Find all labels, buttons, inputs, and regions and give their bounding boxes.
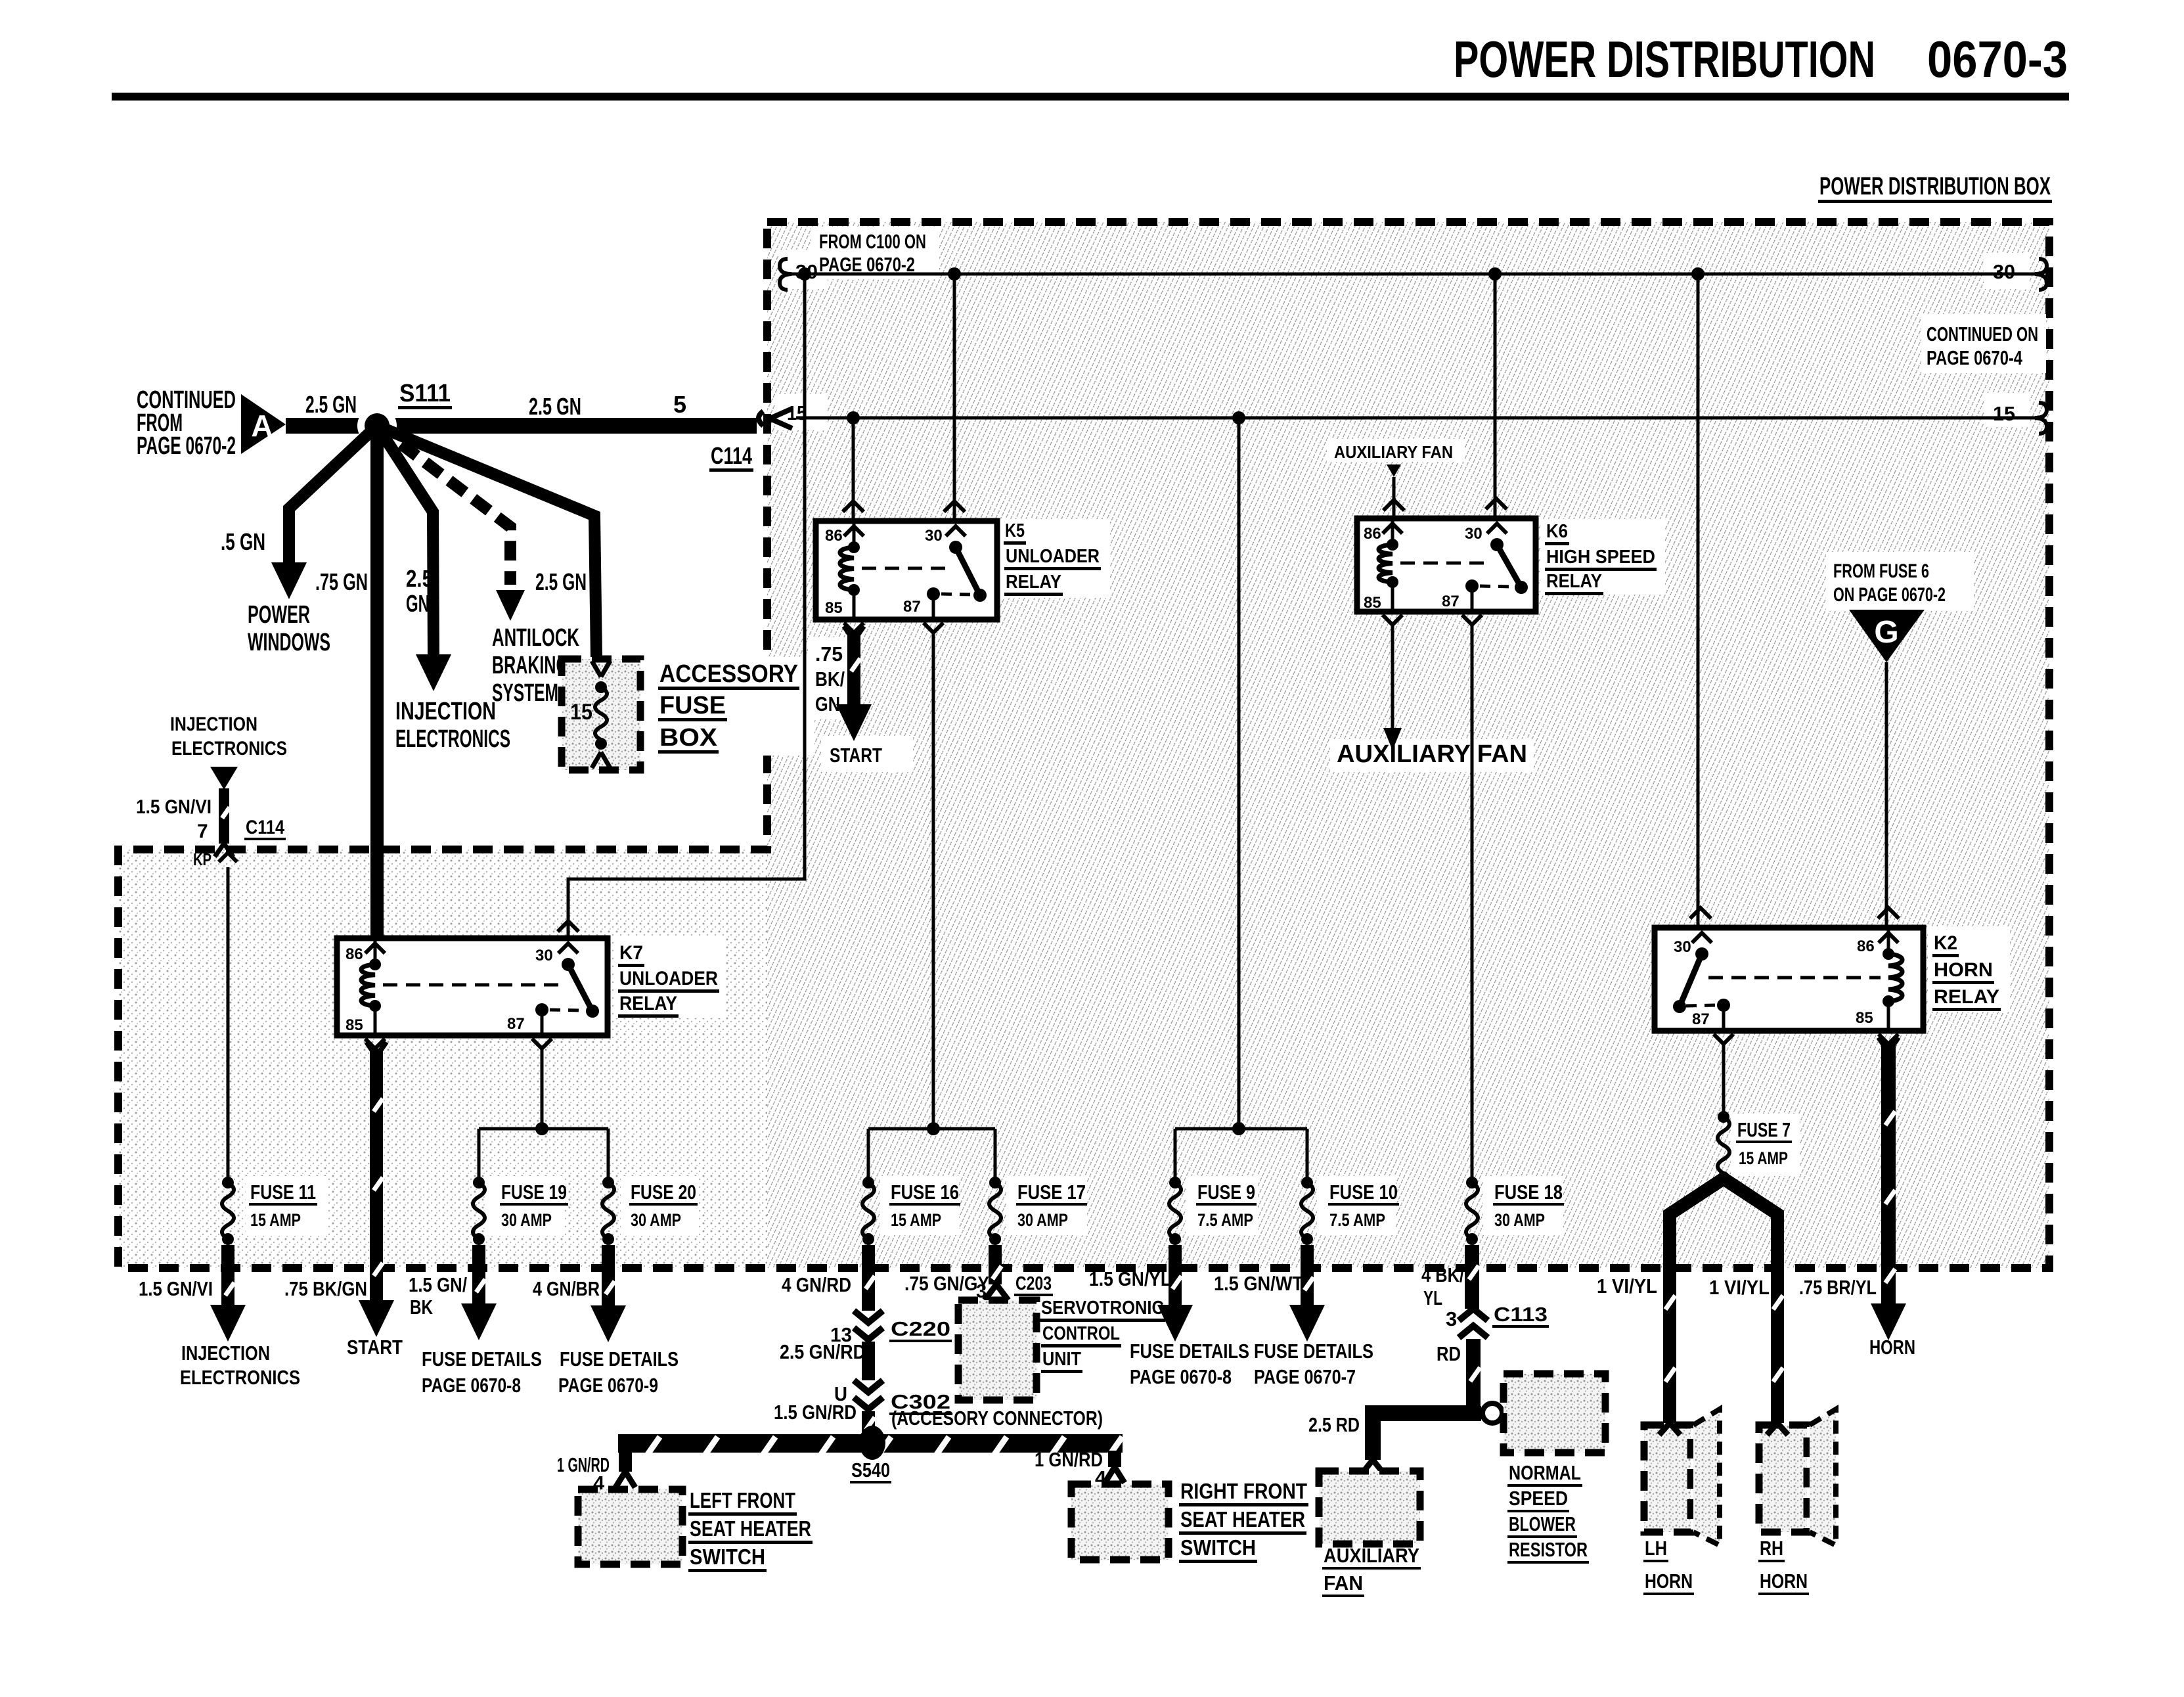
svg-text:PAGE 0670-8: PAGE 0670-8 [422, 1374, 521, 1397]
svg-text:RELAY: RELAY [619, 993, 677, 1014]
svg-text:3: 3 [1446, 1307, 1457, 1330]
svg-text:INJECTION: INJECTION [181, 1342, 270, 1365]
svg-text:RH: RH [1760, 1537, 1783, 1560]
svg-text:30 AMP: 30 AMP [1017, 1210, 1068, 1230]
svg-text:NORMAL: NORMAL [1509, 1461, 1581, 1484]
svg-text:HORN: HORN [1869, 1336, 1915, 1359]
svg-text:BK: BK [410, 1296, 433, 1319]
svg-text:C114: C114 [711, 442, 752, 469]
svg-text:KP: KP [193, 849, 212, 869]
svg-text:AUXILIARY FAN: AUXILIARY FAN [1337, 740, 1527, 768]
svg-text:PAGE 0670-4: PAGE 0670-4 [1927, 346, 2023, 369]
svg-text:BRAKING: BRAKING [492, 652, 569, 679]
svg-text:LEFT FRONT: LEFT FRONT [690, 1488, 795, 1512]
svg-text:15 AMP: 15 AMP [891, 1210, 941, 1230]
svg-text:FUSE: FUSE [659, 692, 726, 719]
svg-text:START: START [347, 1336, 403, 1359]
svg-text:GN: GN [815, 692, 840, 715]
svg-text:RELAY: RELAY [1934, 986, 1999, 1008]
svg-text:SERVOTRONIC: SERVOTRONIC [1041, 1298, 1164, 1319]
svg-text:HORN: HORN [1760, 1570, 1808, 1593]
svg-text:7.5 AMP: 7.5 AMP [1329, 1210, 1385, 1230]
svg-text:PAGE 0670-2: PAGE 0670-2 [137, 432, 236, 460]
svg-text:BOX: BOX [659, 724, 718, 752]
svg-text:BK/: BK/ [815, 667, 845, 690]
svg-text:4 GN/BR: 4 GN/BR [533, 1277, 600, 1300]
svg-text:7: 7 [197, 821, 208, 842]
svg-text:2.5 GN: 2.5 GN [305, 391, 357, 418]
svg-text:7.5 AMP: 7.5 AMP [1197, 1210, 1253, 1230]
svg-text:HIGH SPEED: HIGH SPEED [1546, 547, 1655, 568]
svg-text:.75 BR/YL: .75 BR/YL [1799, 1276, 1877, 1299]
svg-text:15 AMP: 15 AMP [250, 1210, 301, 1230]
svg-text:PAGE 0670-8: PAGE 0670-8 [1130, 1365, 1232, 1388]
svg-text:LH: LH [1645, 1537, 1667, 1560]
svg-text:87: 87 [903, 598, 921, 616]
svg-text:15: 15 [1993, 402, 2015, 425]
svg-text:FROM FUSE 6: FROM FUSE 6 [1833, 560, 1929, 582]
svg-text:4 BK/: 4 BK/ [1421, 1263, 1464, 1286]
svg-text:INJECTION: INJECTION [395, 698, 496, 725]
svg-text:30 AMP: 30 AMP [1494, 1210, 1545, 1230]
svg-text:SYSTEM: SYSTEM [492, 679, 558, 707]
svg-text:CONTINUED ON: CONTINUED ON [1927, 323, 2038, 346]
svg-text:1.5 GN/: 1.5 GN/ [409, 1273, 467, 1296]
svg-text:1.5 GN/RD: 1.5 GN/RD [774, 1401, 857, 1424]
svg-text:86: 86 [345, 945, 363, 963]
svg-text:15 AMP: 15 AMP [1739, 1148, 1788, 1168]
svg-text:FUSE DETAILS: FUSE DETAILS [560, 1347, 679, 1370]
svg-text:86: 86 [1364, 525, 1381, 543]
svg-text:FUSE DETAILS: FUSE DETAILS [422, 1347, 542, 1370]
svg-text:AUXILIARY FAN: AUXILIARY FAN [1334, 442, 1453, 462]
svg-text:WINDOWS: WINDOWS [248, 629, 330, 656]
svg-text:(ACCESORY CONNECTOR): (ACCESORY CONNECTOR) [891, 1407, 1103, 1430]
svg-text:1.5 GN/VI: 1.5 GN/VI [136, 796, 212, 818]
svg-text:2.5 RD: 2.5 RD [1308, 1413, 1360, 1436]
svg-text:85: 85 [825, 599, 843, 617]
svg-text:85: 85 [1364, 594, 1381, 612]
svg-text:SWITCH: SWITCH [690, 1545, 765, 1569]
svg-text:30: 30 [1465, 525, 1482, 543]
svg-text:1 VI/YL: 1 VI/YL [1597, 1275, 1657, 1298]
svg-text:FUSE DETAILS: FUSE DETAILS [1254, 1340, 1373, 1363]
svg-text:FUSE 11: FUSE 11 [250, 1181, 316, 1204]
svg-text:SWITCH: SWITCH [1180, 1535, 1256, 1560]
svg-text:FROM C100 ON: FROM C100 ON [819, 230, 926, 253]
svg-text:ON PAGE 0670-2: ON PAGE 0670-2 [1833, 584, 1946, 606]
svg-text:YL: YL [1423, 1286, 1442, 1309]
svg-text:S111: S111 [399, 380, 451, 407]
svg-text:POWER DISTRIBUTION: POWER DISTRIBUTION [1454, 30, 1875, 88]
svg-text:FUSE DETAILS: FUSE DETAILS [1130, 1340, 1249, 1363]
svg-text:2.5: 2.5 [406, 565, 433, 592]
svg-text:87: 87 [1692, 1010, 1710, 1028]
svg-text:30: 30 [535, 947, 553, 964]
svg-text:C220: C220 [891, 1317, 950, 1340]
svg-text:FUSE 7: FUSE 7 [1737, 1118, 1791, 1141]
svg-text:ANTILOCK: ANTILOCK [492, 624, 579, 652]
svg-text:.75 BK/GN: .75 BK/GN [284, 1277, 367, 1300]
svg-text:ACCESSORY: ACCESSORY [659, 660, 798, 688]
svg-text:PAGE 0670-7: PAGE 0670-7 [1254, 1365, 1356, 1388]
svg-text:30: 30 [1993, 260, 2015, 283]
svg-text:POWER DISTRIBUTION BOX: POWER DISTRIBUTION BOX [1819, 173, 2051, 200]
svg-text:HORN: HORN [1934, 959, 1993, 981]
svg-text:SEAT HEATER: SEAT HEATER [1180, 1507, 1305, 1531]
svg-text:UNIT: UNIT [1042, 1349, 1081, 1370]
svg-text:1 VI/YL: 1 VI/YL [1709, 1276, 1770, 1299]
svg-text:1.5 GN/VI: 1.5 GN/VI [139, 1277, 213, 1300]
svg-text:30: 30 [925, 527, 943, 545]
svg-text:UNLOADER: UNLOADER [1006, 546, 1100, 567]
svg-text:1 GN/RD: 1 GN/RD [1035, 1448, 1103, 1471]
svg-text:RD: RD [1437, 1342, 1461, 1365]
svg-text:5: 5 [673, 391, 686, 418]
svg-text:4 GN/RD: 4 GN/RD [782, 1273, 851, 1296]
svg-text:85: 85 [1856, 1009, 1873, 1027]
svg-text:.5 GN: .5 GN [221, 528, 265, 555]
svg-text:30 AMP: 30 AMP [631, 1210, 681, 1230]
svg-text:86: 86 [825, 527, 843, 545]
svg-text:85: 85 [345, 1016, 363, 1034]
svg-text:15: 15 [570, 700, 592, 725]
svg-text:FUSE 17: FUSE 17 [1017, 1181, 1086, 1204]
svg-text:2.5 GN: 2.5 GN [529, 393, 581, 420]
svg-text:INJECTION: INJECTION [170, 713, 257, 735]
svg-text:RELAY: RELAY [1006, 572, 1061, 593]
svg-text:RIGHT FRONT: RIGHT FRONT [1180, 1479, 1307, 1503]
svg-text:C114: C114 [246, 817, 284, 838]
svg-text:ELECTRONICS: ELECTRONICS [171, 738, 287, 759]
svg-text:87: 87 [1442, 593, 1460, 610]
svg-text:87: 87 [507, 1015, 525, 1033]
svg-text:HORN: HORN [1645, 1570, 1693, 1593]
svg-text:K7: K7 [619, 942, 643, 964]
svg-text:C203: C203 [1015, 1273, 1052, 1294]
svg-text:CONTROL: CONTROL [1042, 1323, 1120, 1344]
svg-text:30: 30 [1674, 938, 1691, 956]
svg-text:BLOWER: BLOWER [1509, 1512, 1576, 1535]
svg-text:SEAT HEATER: SEAT HEATER [690, 1516, 811, 1541]
svg-text:AUXILIARY: AUXILIARY [1324, 1544, 1419, 1567]
svg-text:ELECTRONICS: ELECTRONICS [180, 1366, 300, 1389]
svg-text:2.5 GN: 2.5 GN [535, 568, 587, 595]
svg-text:UNLOADER: UNLOADER [619, 968, 718, 989]
svg-text:SPEED: SPEED [1509, 1487, 1568, 1510]
svg-text:FUSE 10: FUSE 10 [1329, 1181, 1398, 1204]
svg-text:0670-3: 0670-3 [1927, 30, 2068, 88]
svg-text:FUSE 18: FUSE 18 [1494, 1181, 1563, 1204]
svg-text:PAGE 0670-9: PAGE 0670-9 [558, 1374, 658, 1397]
svg-text:1.5 GN/WT: 1.5 GN/WT [1214, 1272, 1303, 1295]
svg-text:FUSE 9: FUSE 9 [1197, 1181, 1255, 1204]
svg-text:FUSE 16: FUSE 16 [891, 1181, 959, 1204]
svg-text:G: G [1874, 615, 1898, 650]
svg-text:FAN: FAN [1324, 1572, 1363, 1595]
svg-text:.75: .75 [815, 643, 843, 666]
svg-text:C113: C113 [1494, 1303, 1548, 1326]
svg-text:FUSE 20: FUSE 20 [631, 1181, 696, 1204]
svg-text:86: 86 [1857, 938, 1875, 955]
svg-text:RESISTOR: RESISTOR [1509, 1538, 1588, 1561]
svg-text:30 AMP: 30 AMP [501, 1210, 552, 1230]
svg-text:1.5 GN/YL: 1.5 GN/YL [1089, 1267, 1171, 1290]
svg-text:PAGE 0670-2: PAGE 0670-2 [819, 253, 915, 276]
svg-text:A: A [251, 409, 273, 443]
svg-text:K2: K2 [1934, 932, 1957, 954]
svg-text:.75 GN: .75 GN [315, 568, 368, 595]
svg-text:K5: K5 [1005, 520, 1025, 541]
svg-text:ELECTRONICS: ELECTRONICS [395, 725, 510, 753]
svg-text:K6: K6 [1546, 521, 1568, 542]
svg-text:S540: S540 [851, 1459, 890, 1482]
svg-text:GN: GN [406, 590, 430, 617]
svg-text:START: START [830, 744, 882, 767]
svg-text:FUSE 19: FUSE 19 [501, 1181, 567, 1204]
svg-text:RELAY: RELAY [1546, 571, 1602, 592]
svg-text:2.5 GN/RD: 2.5 GN/RD [780, 1340, 866, 1363]
svg-text:POWER: POWER [248, 601, 310, 629]
